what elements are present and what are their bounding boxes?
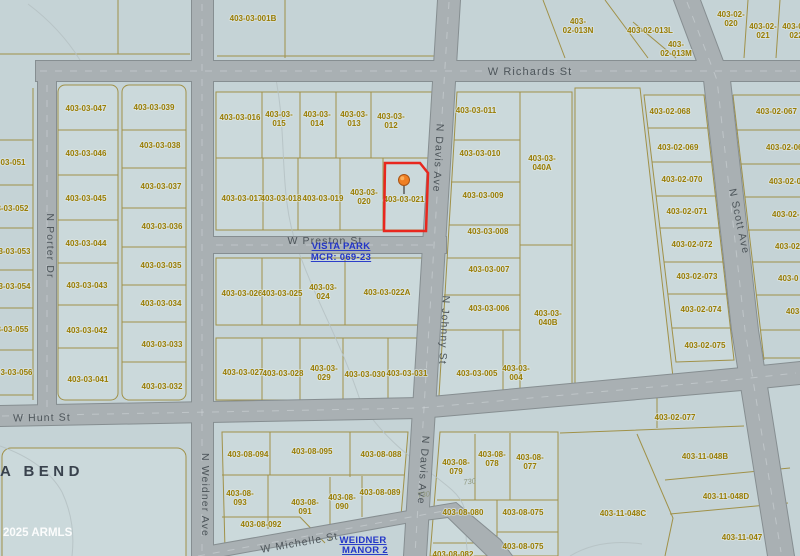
parcel-label: 403-03-011: [456, 106, 497, 115]
parcel-label: 403-11-047: [722, 533, 763, 542]
parcel-label: 403-08-080: [443, 508, 484, 517]
parcel-label: 403-02-06: [766, 143, 800, 152]
parcel-label: 403-02-077: [655, 413, 696, 422]
parcel-label: 403-: [786, 307, 800, 316]
street-label: W Hunt St: [13, 411, 71, 424]
parcel-label: 403-03-037: [141, 182, 182, 191]
parcel-label: 403-03-009: [463, 191, 504, 200]
street-label: N Weidner Ave: [199, 453, 211, 537]
parcel-label: 403-02-067: [756, 107, 797, 116]
parcel-label: 403-03-044: [66, 239, 107, 248]
parcel-label: 403-08-092: [241, 520, 282, 529]
parcel-label: 403-03-033: [142, 340, 183, 349]
parcel-label: 403-02-06: [769, 177, 800, 186]
parcel-label: 403-02-073: [677, 272, 718, 281]
parcel-label: 403-03-018: [261, 194, 302, 203]
parcel-label: 403-03-032: [142, 382, 183, 391]
parcel-label: 403-03-054: [0, 282, 31, 291]
parcel-label: 403-03-008: [468, 227, 509, 236]
survey-note: 730: [417, 489, 431, 500]
parcel-label: 403-02-068: [650, 107, 691, 116]
parcel-label: 403-03-038: [140, 141, 181, 150]
parcel-label: 403-02-013L: [627, 26, 673, 35]
parcel-label: 403-02-071: [667, 207, 708, 216]
parcel-label: 403-08-095: [292, 447, 333, 456]
parcel-label: 403-02: [775, 242, 800, 251]
subdivision-label: MCR: 069-23: [311, 252, 371, 263]
parcel-label: 403-03-022A: [364, 288, 411, 297]
parcel-label: 403-03-025: [262, 289, 303, 298]
parcel-label: 403-03-055: [0, 325, 29, 334]
parcel-label: 403-02-074: [681, 305, 722, 314]
parcel-label: 403-03-028: [263, 369, 304, 378]
parcel-label: 403-03-035: [141, 261, 182, 270]
parcel-label: 403-08-075: [503, 508, 544, 517]
parcel-label: 403-03-056: [0, 368, 33, 377]
parcel-label: 403-03-017: [222, 194, 263, 203]
parcel-label: 403-03-041: [68, 375, 109, 384]
parcel-label: 403-08-088: [361, 450, 402, 459]
parcel-label: 403-03-043: [67, 281, 108, 290]
parcel-label: 403-03-051: [0, 158, 26, 167]
parcel-label: 403-08-089: [360, 488, 401, 497]
parcel-label: 403-03-030: [345, 370, 386, 379]
parcel-label: 403-02-069: [658, 143, 699, 152]
parcel-label: 403-03-053: [0, 247, 31, 256]
parcel-label: 403-02-0: [772, 210, 800, 219]
parcel-label: 403-03-021: [384, 195, 425, 204]
parcel-label: 403-03-007: [469, 265, 510, 274]
parcel-label: 403-03-039: [134, 103, 175, 112]
subdivision-label: VISTA PARK: [312, 241, 371, 252]
parcel-label: 403-02-072: [672, 240, 713, 249]
parcel-label: 403-08-082: [433, 550, 474, 556]
armls-watermark: 2025 ARMLS: [3, 527, 73, 539]
parcel-label: 403-03-006: [469, 304, 510, 313]
parcel-label: 403-03-031: [387, 369, 428, 378]
parcel-label: 403-03-046: [66, 149, 107, 158]
parcel-label: 403-03-034: [141, 299, 182, 308]
parcel-label: 403-03-016: [220, 113, 261, 122]
subdivision-label: MANOR 2: [342, 545, 388, 556]
survey-note: 730: [463, 476, 477, 487]
parcel-label: 403-03-027: [223, 368, 264, 377]
parcel-label: 403-11-048C: [600, 509, 646, 518]
parcel-label: 403-03-005: [457, 369, 498, 378]
street-label: W Richards St: [488, 66, 573, 78]
parcel-map-canvas[interactable]: 403-03-051403-03-052403-03-053403-03-054…: [0, 0, 800, 556]
parcel-label: 403-02-075: [685, 341, 726, 350]
parcel-label: 403-02-070: [662, 175, 703, 184]
parcel-label: 403-08-094: [228, 450, 269, 459]
street-label: N Porter Dr: [44, 213, 56, 278]
place-label-gila-bend: A BEND: [0, 463, 84, 480]
parcel-label: 403-11-048B: [682, 452, 728, 461]
parcel-label: 403-03-052: [0, 204, 29, 213]
parcel-label: 403-03-001B: [230, 14, 277, 23]
parcel-label: 403-03-042: [67, 326, 108, 335]
parcel-label: 403-11-048D: [703, 492, 749, 501]
parcel-label: 403-0: [778, 274, 799, 283]
parcel-label: 403-03-045: [66, 194, 107, 203]
parcel-label: 403-03-019: [303, 194, 344, 203]
parcel-label: 403-08-075: [503, 542, 544, 551]
parcel-label: 403-03-010: [460, 149, 501, 158]
parcel-label: 403-03-026: [222, 289, 263, 298]
parcel-label: 403-03-047: [66, 104, 107, 113]
parcel-label: 403-03-036: [142, 222, 183, 231]
